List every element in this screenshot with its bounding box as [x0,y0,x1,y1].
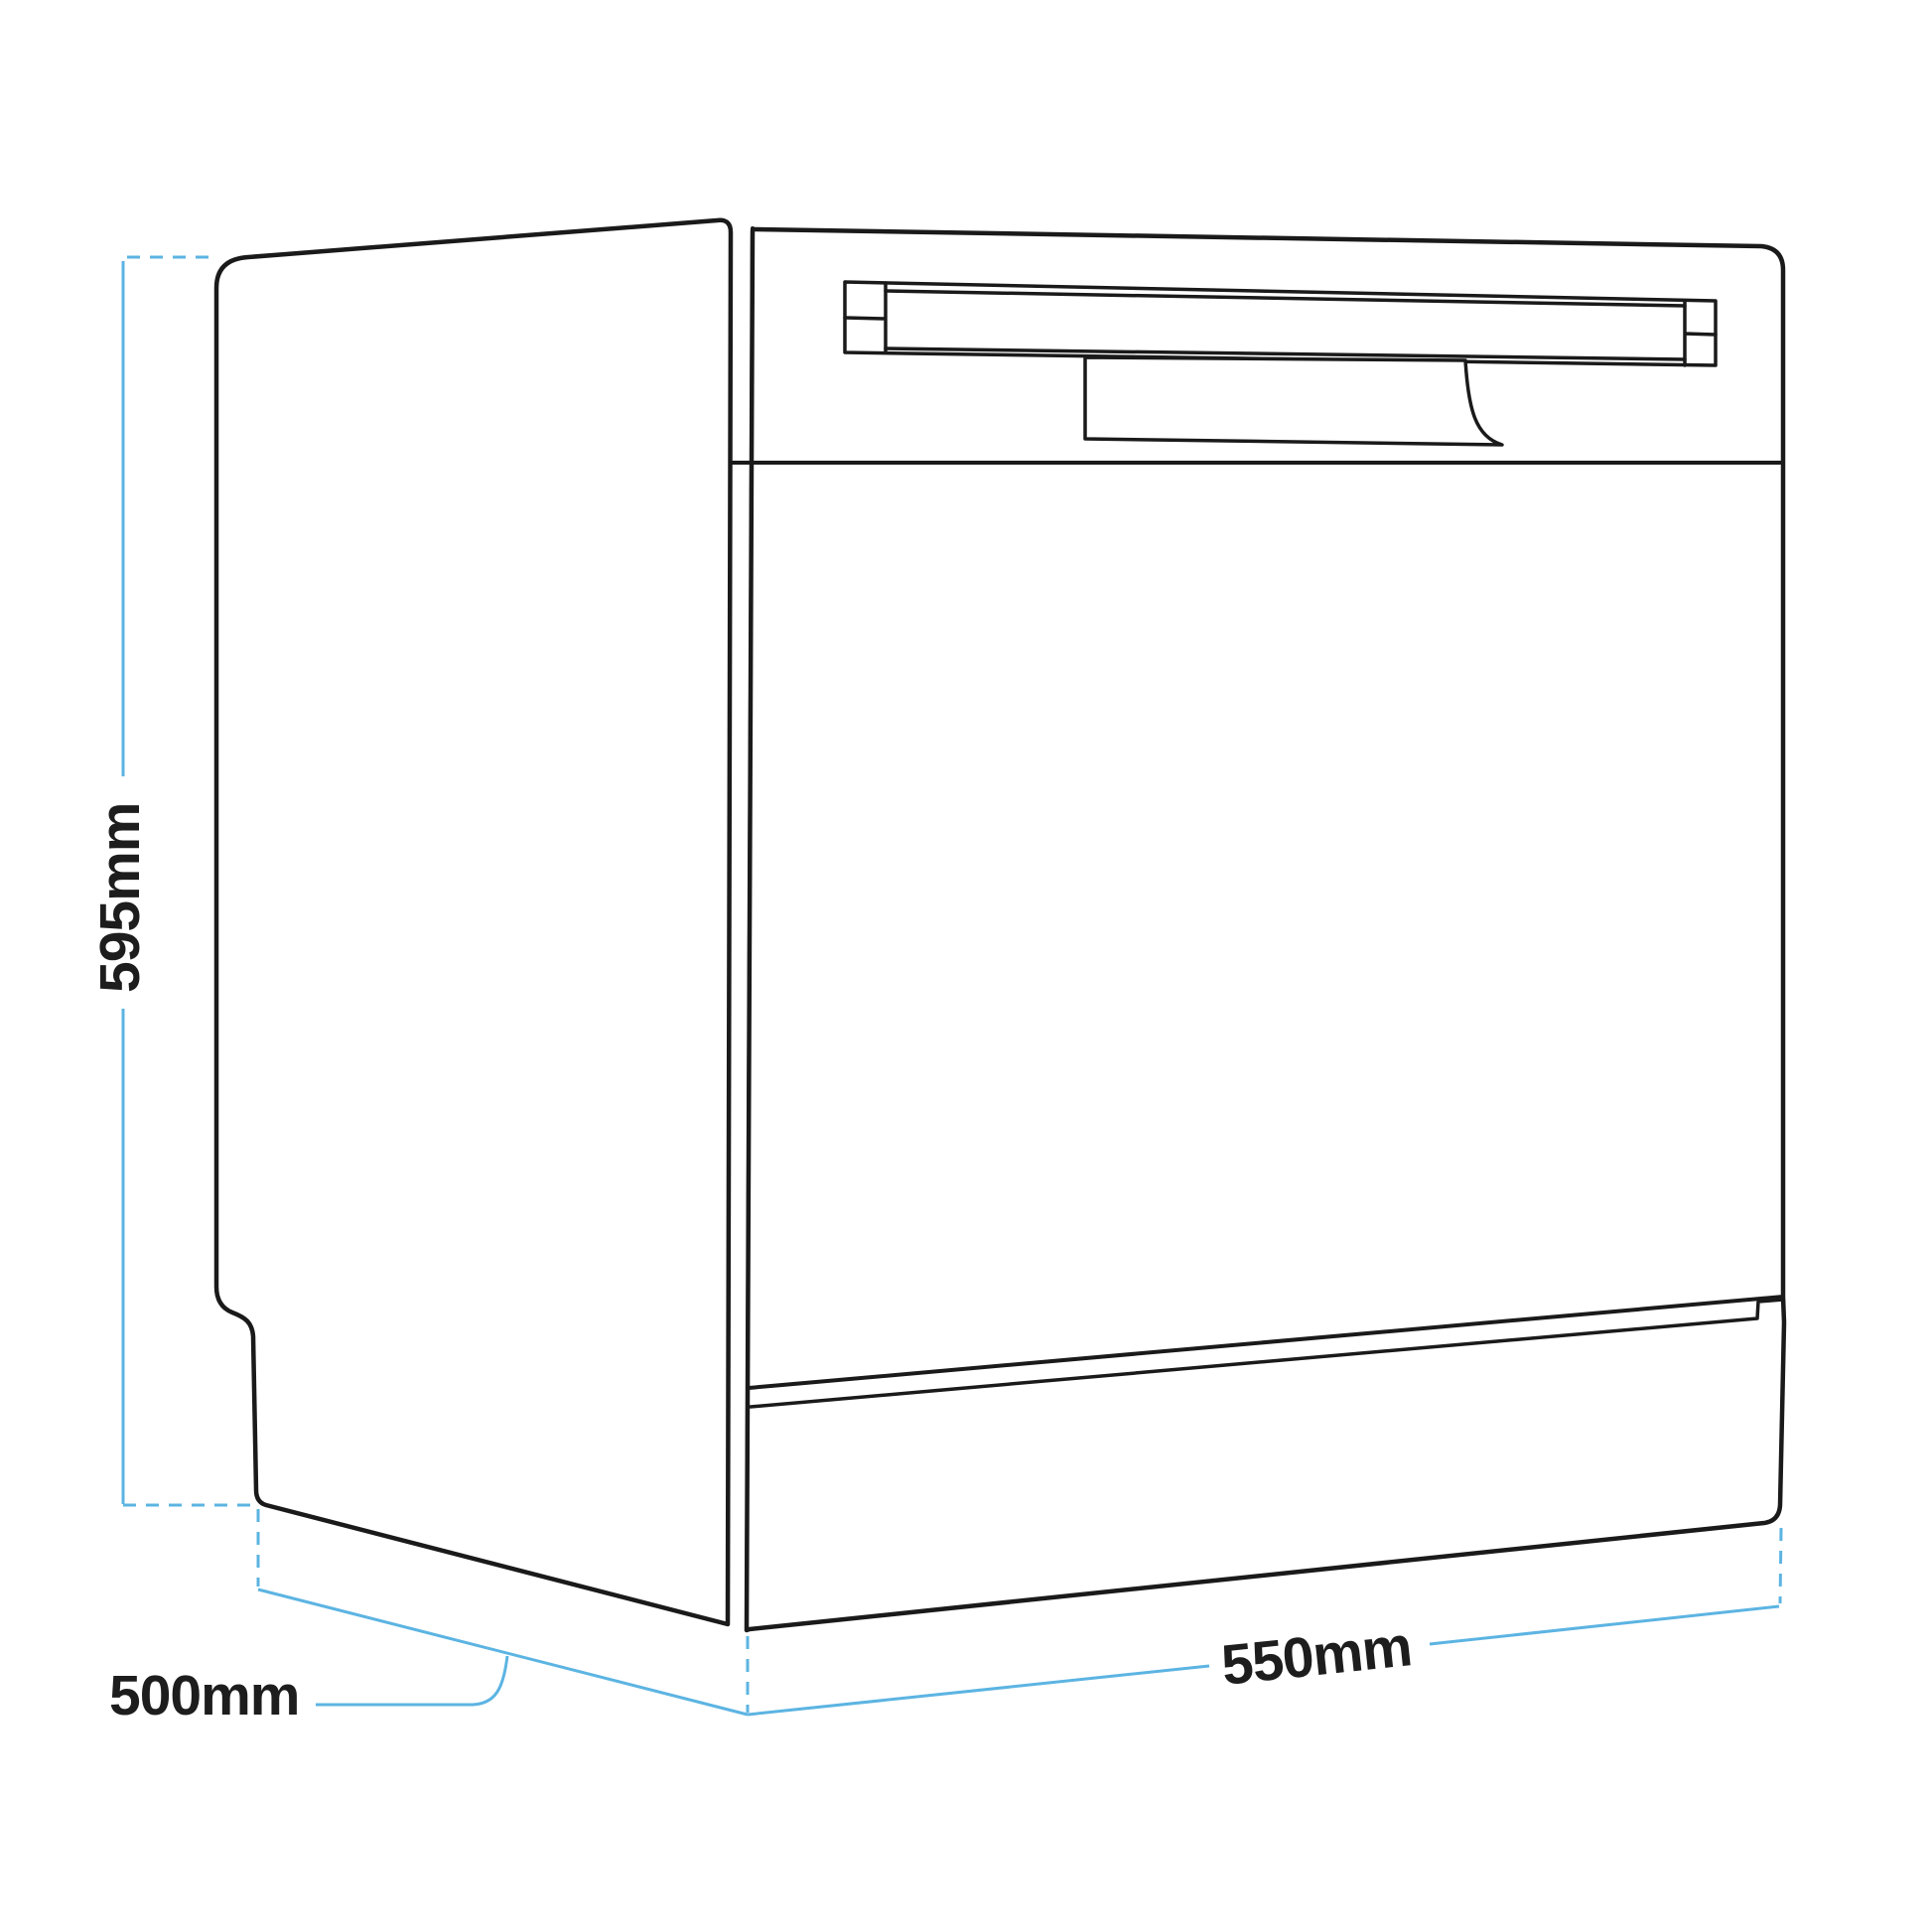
width-label: 550mm [1218,1614,1414,1698]
appliance-outline [216,220,1784,1630]
depth-label: 500mm [109,1664,299,1727]
right-corner-projection [1780,1528,1781,1603]
side-panel [216,220,731,1624]
handle-flap [1085,357,1502,445]
dishwasher-dimension-diagram: 595mm 500mm 550mm [0,0,1932,1932]
height-bottom-extension [123,1505,258,1587]
height-label: 595mm [88,803,152,993]
appliance-line-drawing: 595mm 500mm 550mm [0,0,1932,1932]
depth-label-leader [316,1656,507,1705]
